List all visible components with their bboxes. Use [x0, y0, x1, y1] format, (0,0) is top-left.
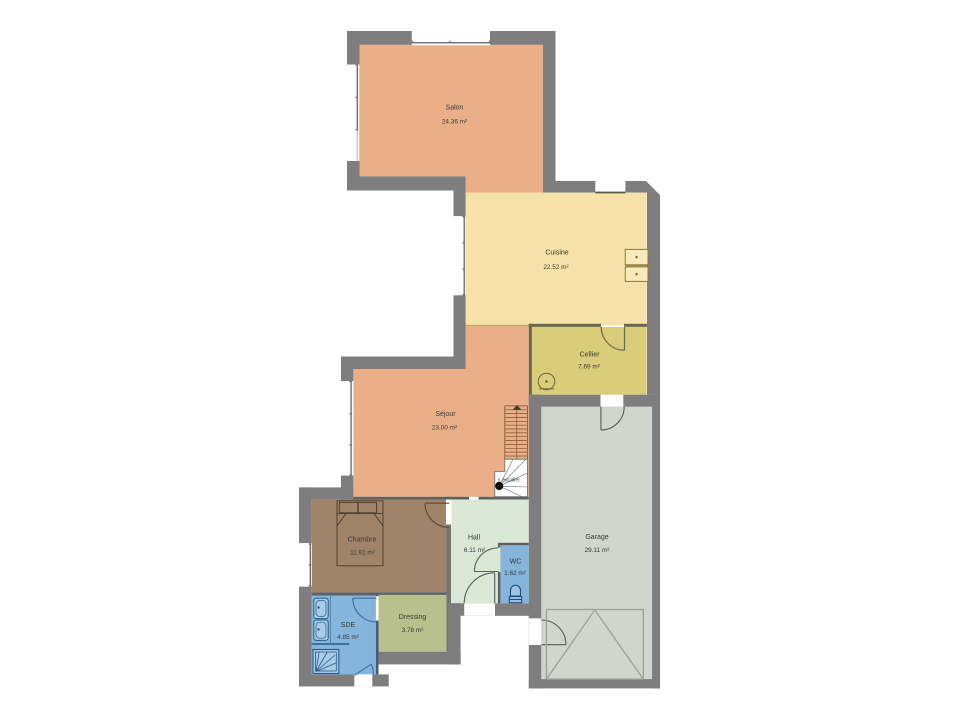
svg-text:22.52 m²: 22.52 m²: [543, 264, 568, 271]
svg-text:11.91 m²: 11.91 m²: [350, 550, 375, 557]
svg-text:4.85 m²: 4.85 m²: [337, 634, 359, 641]
svg-text:s escalier: s escalier: [498, 478, 520, 484]
svg-text:7.69 m²: 7.69 m²: [578, 364, 600, 371]
svg-text:Chambre: Chambre: [348, 537, 377, 544]
svg-text:Cuisine: Cuisine: [545, 250, 568, 257]
svg-text:Garage: Garage: [585, 534, 608, 541]
svg-text:23.00 m²: 23.00 m²: [432, 425, 457, 432]
svg-text:Dressing: Dressing: [399, 614, 427, 621]
svg-text:1.62 m²: 1.62 m²: [504, 570, 526, 577]
svg-text:SDE: SDE: [341, 622, 356, 629]
svg-text:Séjour: Séjour: [435, 411, 456, 418]
svg-text:6.11 m²: 6.11 m²: [464, 547, 485, 554]
svg-text:Hall: Hall: [468, 535, 481, 542]
svg-text:WC: WC: [510, 559, 522, 566]
svg-text:29.11 m²: 29.11 m²: [585, 547, 610, 554]
svg-text:3.78 m²: 3.78 m²: [402, 627, 424, 634]
svg-text:Cellier: Cellier: [580, 352, 601, 359]
svg-text:Salon: Salon: [446, 105, 464, 112]
svg-text:24.36 m²: 24.36 m²: [442, 119, 467, 126]
